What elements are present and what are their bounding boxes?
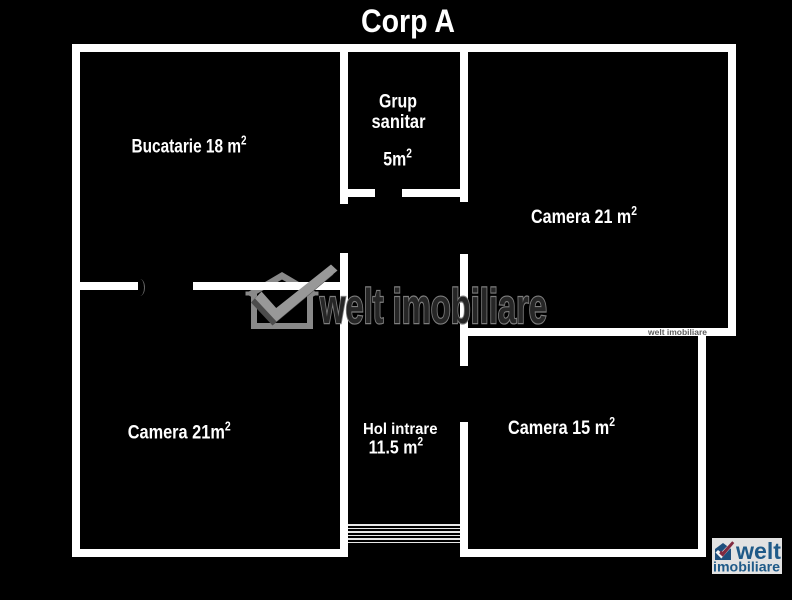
svg-text:imobiliare: imobiliare (713, 560, 781, 575)
